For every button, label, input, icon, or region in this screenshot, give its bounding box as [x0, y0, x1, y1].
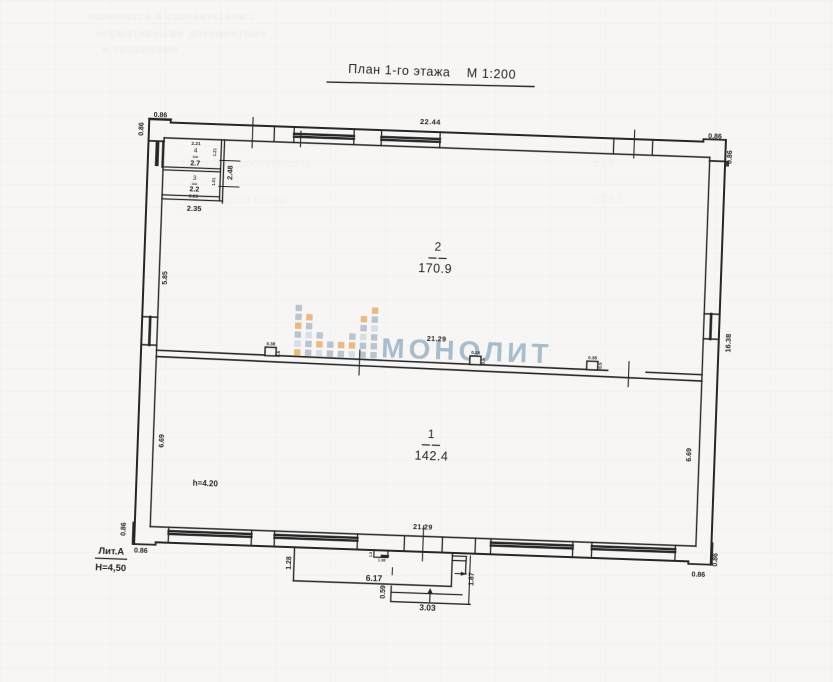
svg-text:6.69: 6.69 — [686, 448, 693, 462]
svg-text:619.1: 619.1 — [592, 191, 625, 206]
svg-text:0.86: 0.86 — [691, 571, 705, 578]
svg-text:Н=4,50: Н=4,50 — [95, 562, 126, 574]
svg-text:0.86: 0.86 — [727, 150, 734, 164]
svg-text:619: 619 — [592, 155, 614, 170]
svg-text:1.28: 1.28 — [286, 556, 293, 570]
svg-text:6.17: 6.17 — [366, 573, 383, 584]
svg-text:полняются в соответствии с: полняются в соответствии с — [88, 11, 257, 23]
svg-text:1.21: 1.21 — [212, 147, 217, 156]
svg-text:5.85: 5.85 — [162, 271, 169, 285]
svg-text:3.03: 3.03 — [419, 602, 436, 613]
svg-text:Лит.А: Лит.А — [98, 546, 124, 558]
svg-text:0.86: 0.86 — [708, 134, 722, 141]
svg-text:0.38: 0.38 — [266, 341, 275, 346]
svg-text:0.5: 0.5 — [276, 350, 281, 357]
svg-text:2: 2 — [434, 240, 441, 254]
svg-text:0.59: 0.59 — [380, 585, 387, 599]
svg-text:1: 1 — [428, 427, 435, 441]
svg-text:0.5: 0.5 — [598, 362, 603, 369]
svg-text:170.9: 170.9 — [418, 261, 452, 276]
svg-text:0.86: 0.86 — [138, 122, 145, 136]
svg-text:2.21: 2.21 — [189, 193, 199, 199]
svg-text:21.29: 21.29 — [413, 524, 433, 532]
svg-text:0.38: 0.38 — [588, 355, 597, 360]
svg-text:16.38: 16.38 — [723, 334, 733, 353]
svg-text:и правилами: и правилами — [102, 44, 179, 56]
svg-text:1.5: 1.5 — [369, 552, 373, 557]
svg-text:2.21: 2.21 — [191, 141, 201, 147]
svg-text:0.5: 0.5 — [481, 358, 486, 365]
svg-text:2.7: 2.7 — [190, 160, 200, 167]
svg-text:0.86: 0.86 — [134, 548, 148, 555]
svg-text:1.38: 1.38 — [378, 558, 386, 562]
svg-text:1.87: 1.87 — [468, 572, 475, 586]
svg-text:21.29: 21.29 — [427, 336, 447, 344]
svg-text:22.44: 22.44 — [420, 117, 442, 127]
svg-text:0.38: 0.38 — [471, 350, 480, 355]
svg-text:2.35: 2.35 — [187, 204, 202, 214]
svg-text:1.01: 1.01 — [211, 177, 216, 186]
svg-text:0.86: 0.86 — [712, 553, 719, 567]
svg-text:нормативными документами: нормативными документами — [96, 28, 267, 40]
svg-text:2.48: 2.48 — [225, 165, 235, 180]
svg-text:142.4: 142.4 — [414, 449, 448, 464]
svg-text:2.2: 2.2 — [189, 186, 199, 193]
svg-text:6.69: 6.69 — [159, 434, 166, 448]
svg-text:0.86: 0.86 — [120, 522, 127, 536]
svg-text:h=4.20: h=4.20 — [193, 479, 219, 489]
